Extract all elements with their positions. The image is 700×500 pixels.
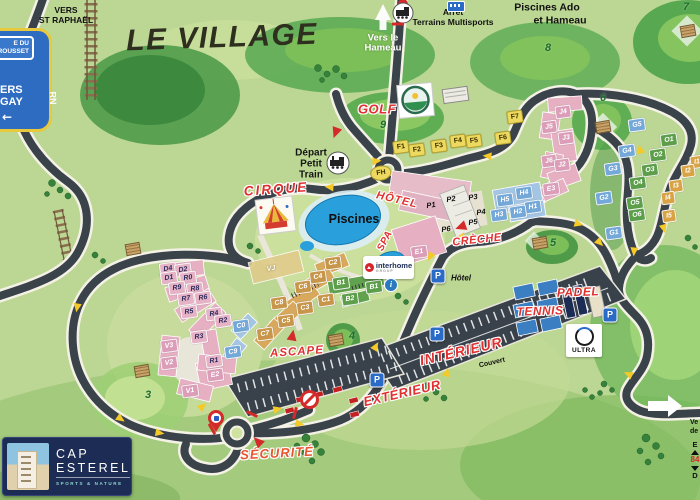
multisport-sign-icon [447,1,465,12]
securite-arrow-icon [250,434,265,449]
depart-arrow-icon [329,126,342,140]
ascape-arrow-icon [287,329,299,342]
resort-map: F1F2F3F4F5F6F7FHJ4J5J3J6J2E3E1E2H4H5H1H2… [0,0,700,500]
bus-icon [214,416,219,421]
icons-layer [0,0,700,500]
creche-arrow-icon [454,220,468,233]
bus-stop-pin-icon [208,410,224,426]
no-parking-sign-icon [300,390,319,409]
